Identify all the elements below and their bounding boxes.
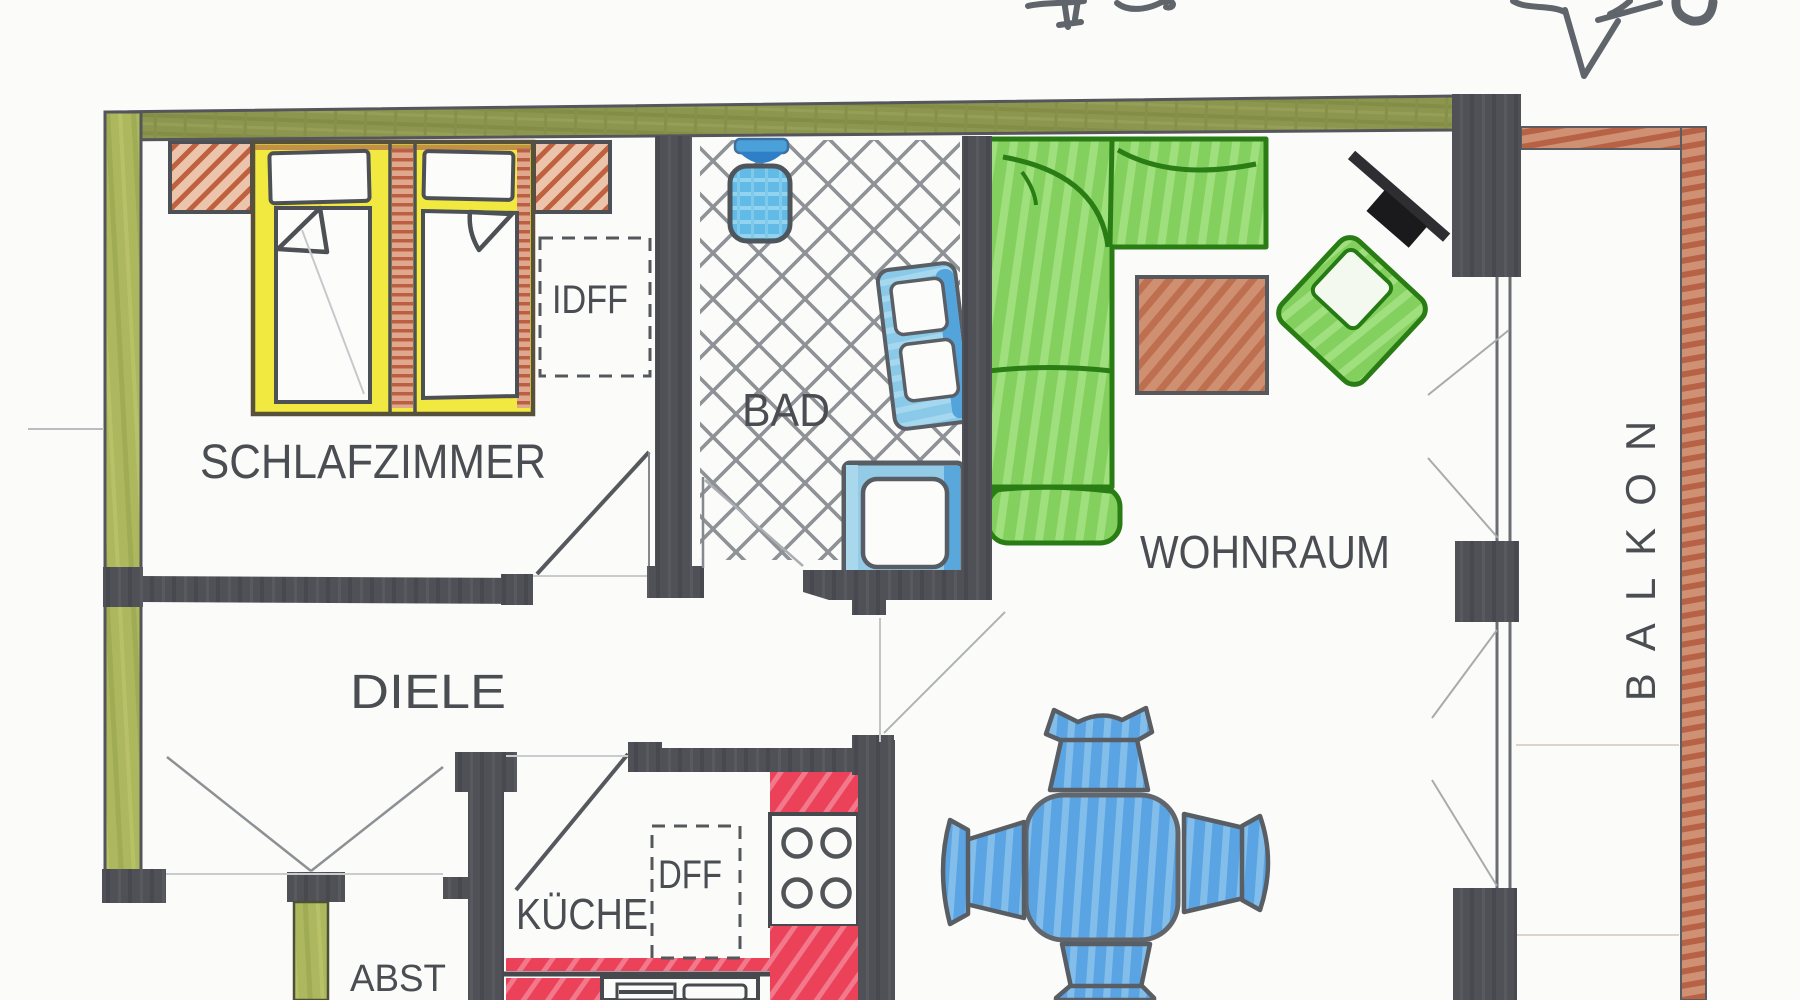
svg-text:DIELE: DIELE xyxy=(350,666,506,719)
svg-text:BAD: BAD xyxy=(742,384,830,436)
svg-text:SCHLAFZIMMER: SCHLAFZIMMER xyxy=(200,436,546,489)
svg-text:KÜCHE: KÜCHE xyxy=(516,890,648,939)
svg-text:IDFF: IDFF xyxy=(552,278,628,322)
svg-text:DFF: DFF xyxy=(658,853,722,897)
svg-text:BALKON: BALKON xyxy=(1617,399,1664,701)
svg-text:WOHNRAUM: WOHNRAUM xyxy=(1140,526,1390,578)
svg-text:ABST: ABST xyxy=(350,958,446,1000)
